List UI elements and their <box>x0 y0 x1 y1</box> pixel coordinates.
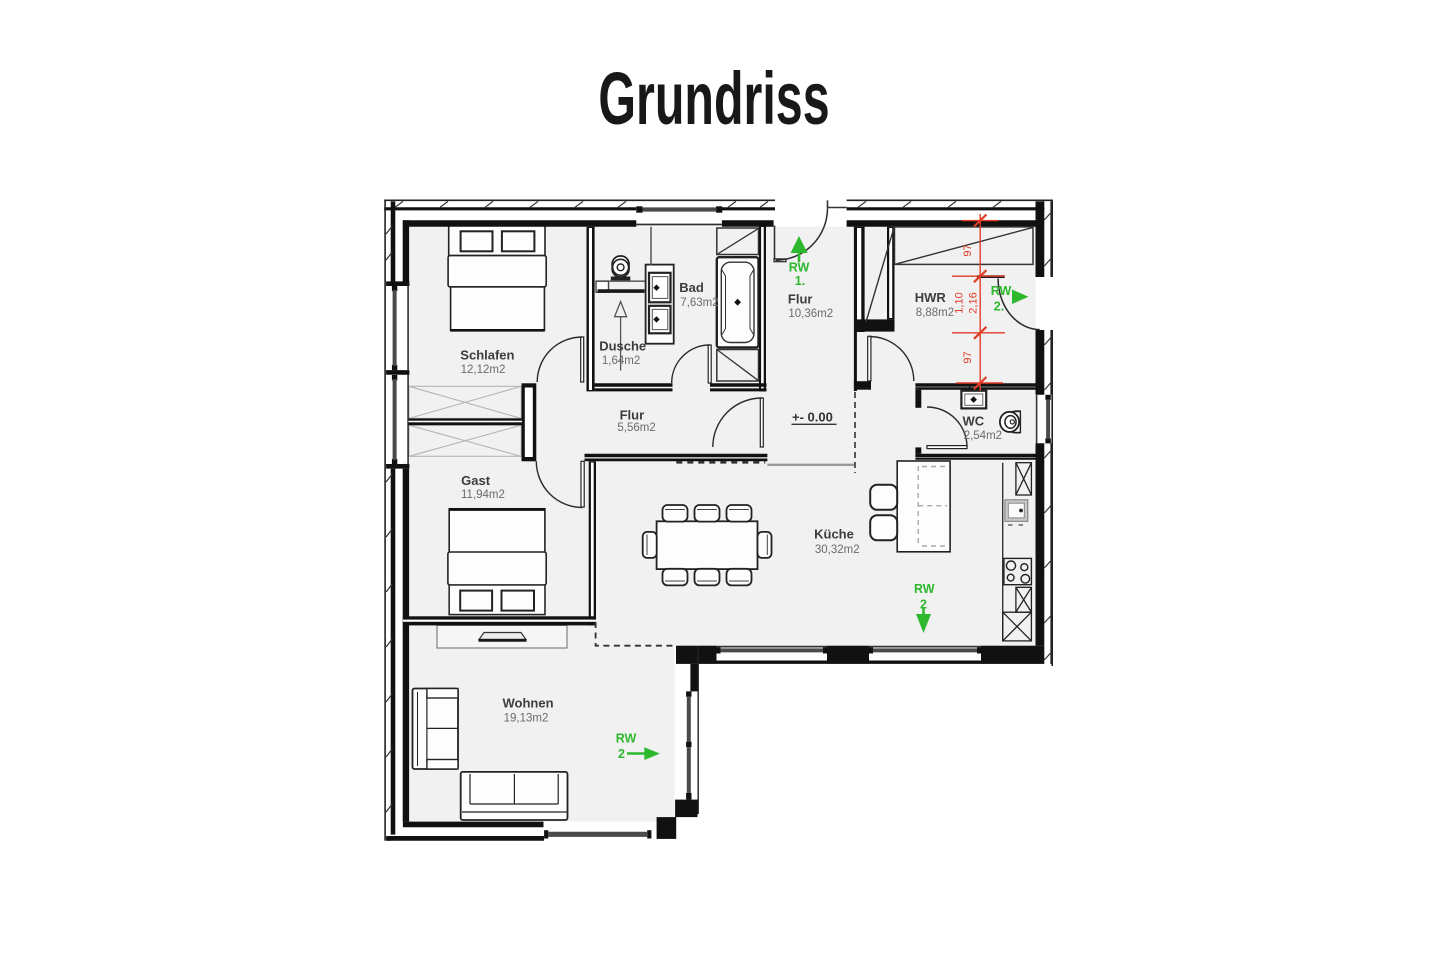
svg-text:7,63m2: 7,63m2 <box>680 297 718 309</box>
svg-text:Dusche: Dusche <box>599 338 646 353</box>
svg-text:RW: RW <box>616 732 637 746</box>
svg-text:11,94m2: 11,94m2 <box>461 489 505 501</box>
svg-text:+- 0.00: +- 0.00 <box>792 410 833 425</box>
svg-text:97: 97 <box>962 351 974 363</box>
svg-text:12,12m2: 12,12m2 <box>461 364 506 376</box>
svg-text:2,54m2: 2,54m2 <box>964 430 1002 442</box>
svg-text:Flur: Flur <box>620 407 645 422</box>
svg-text:10,36m2: 10,36m2 <box>788 308 833 320</box>
svg-text:Wohnen: Wohnen <box>502 695 553 710</box>
svg-text:HWR: HWR <box>915 290 947 305</box>
svg-text:Gast: Gast <box>461 473 491 488</box>
svg-text:2.: 2. <box>994 300 1004 314</box>
svg-text:2: 2 <box>618 747 625 761</box>
svg-text:WC: WC <box>962 413 984 428</box>
svg-text:2,16: 2,16 <box>968 292 980 313</box>
svg-text:Schlafen: Schlafen <box>460 348 514 363</box>
svg-text:1.: 1. <box>795 274 805 288</box>
svg-text:Küche: Küche <box>814 527 854 542</box>
svg-text:1,10: 1,10 <box>954 292 966 313</box>
svg-text:RW: RW <box>789 261 810 275</box>
svg-text:8,88m2: 8,88m2 <box>916 307 954 319</box>
svg-text:Flur: Flur <box>788 292 813 307</box>
svg-text:5,56m2: 5,56m2 <box>617 422 655 434</box>
svg-text:97: 97 <box>962 244 974 256</box>
svg-text:19,13m2: 19,13m2 <box>504 713 549 725</box>
svg-text:RW: RW <box>991 284 1012 298</box>
svg-text:Bad: Bad <box>679 280 704 295</box>
svg-text:1,64m2: 1,64m2 <box>602 355 640 367</box>
svg-text:RW: RW <box>914 582 935 596</box>
svg-text:30,32m2: 30,32m2 <box>815 544 860 556</box>
